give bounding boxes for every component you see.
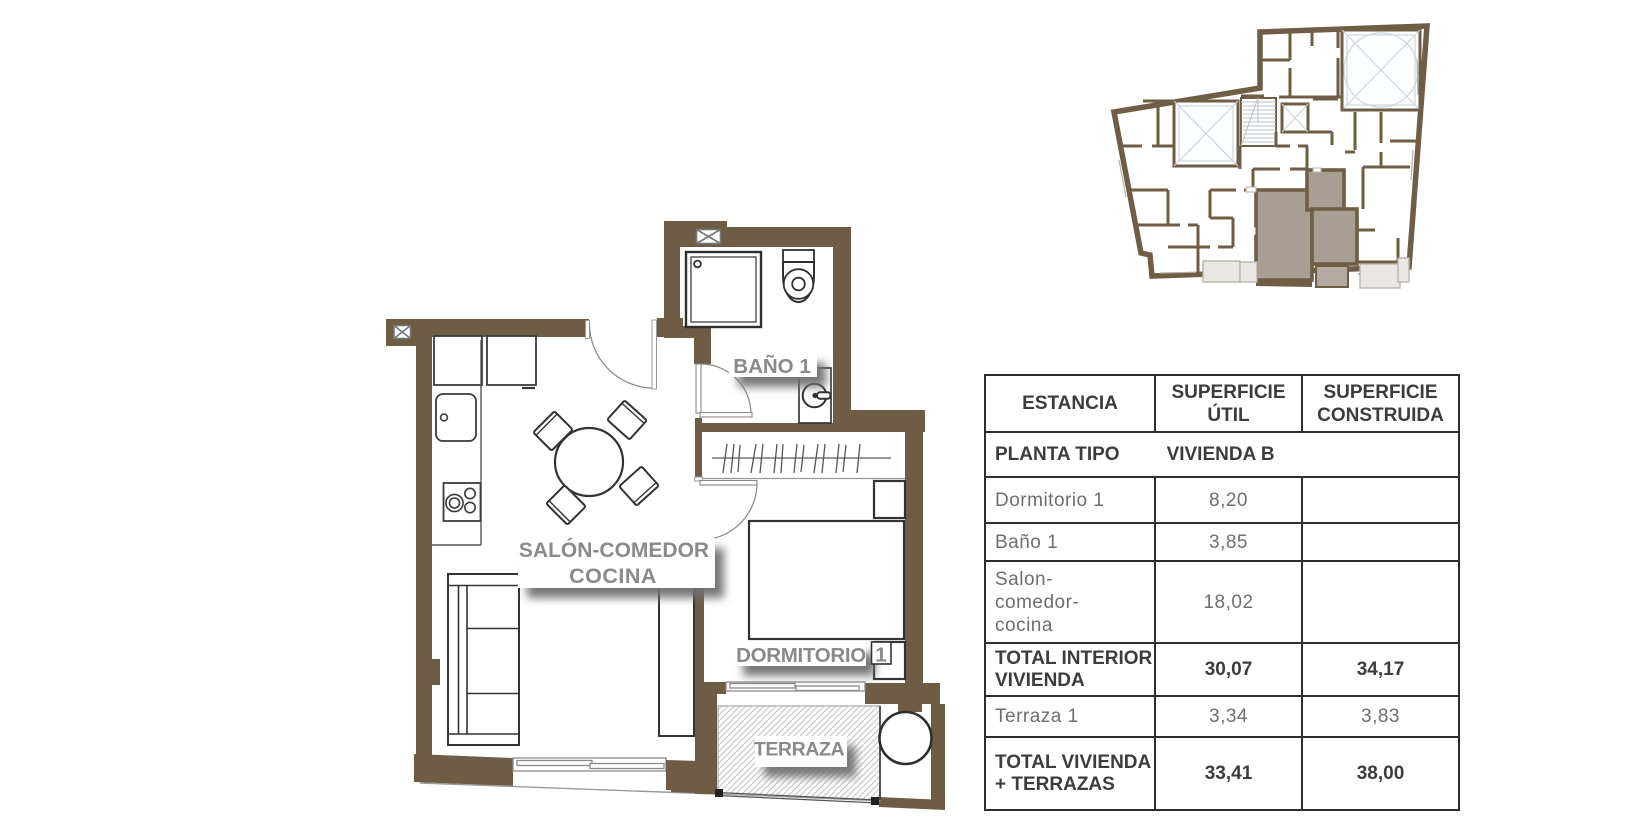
svg-text:SALÓN-COMEDOR: SALÓN-COMEDOR (519, 538, 709, 562)
svg-text:COCINA: COCINA (569, 564, 657, 588)
svg-text:DORMITORIO: DORMITORIO (736, 644, 866, 667)
svg-text:BAÑO 1: BAÑO 1 (733, 355, 810, 378)
svg-text:TERRAZA: TERRAZA (754, 739, 845, 761)
svg-text:1: 1 (875, 644, 886, 667)
